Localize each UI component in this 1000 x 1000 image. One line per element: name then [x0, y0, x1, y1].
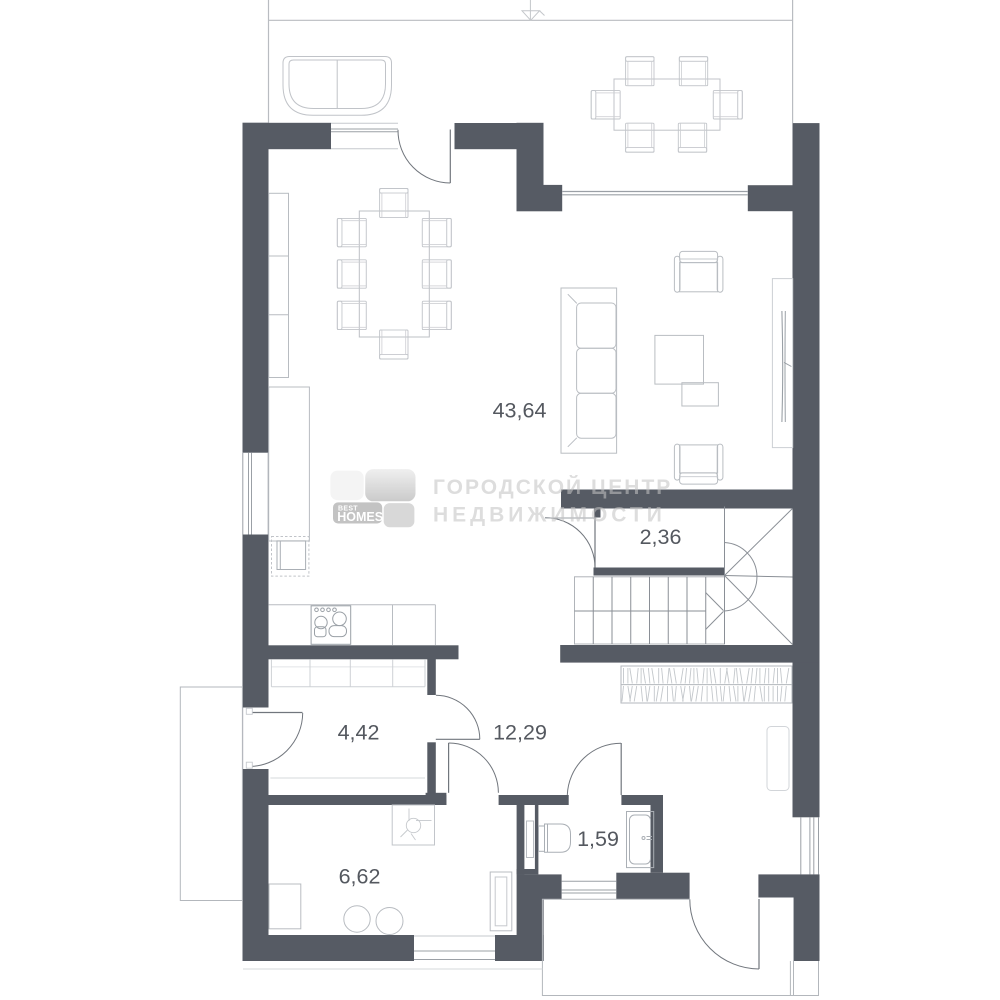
svg-text:2,36: 2,36 — [640, 525, 682, 549]
svg-text:1,59: 1,59 — [577, 827, 619, 851]
svg-text:4,42: 4,42 — [338, 721, 380, 745]
svg-text:НЕДВИЖИМОСТИ: НЕДВИЖИМОСТИ — [433, 504, 666, 527]
svg-text:HOMES: HOMES — [337, 510, 383, 524]
svg-text:12,29: 12,29 — [493, 721, 547, 745]
svg-text:6,62: 6,62 — [339, 865, 381, 889]
svg-text:43,64: 43,64 — [493, 399, 547, 423]
svg-text:ГОРОДСКОЙ ЦЕНТР: ГОРОДСКОЙ ЦЕНТР — [433, 475, 672, 499]
